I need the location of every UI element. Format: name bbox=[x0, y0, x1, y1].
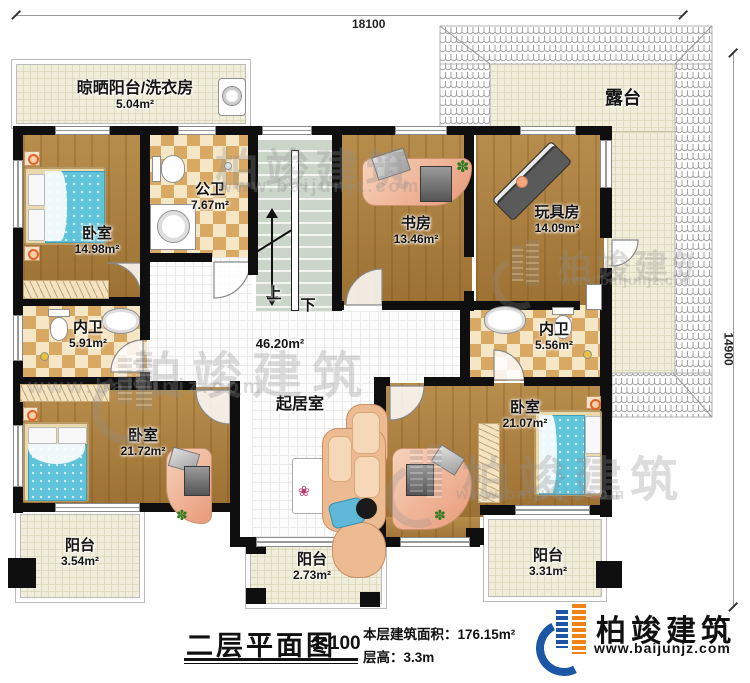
wall bbox=[140, 306, 150, 340]
window bbox=[262, 126, 312, 135]
window bbox=[515, 505, 590, 515]
window bbox=[13, 160, 23, 228]
plan-scale: 1:100 bbox=[312, 633, 361, 655]
wall bbox=[480, 505, 515, 515]
pillar bbox=[246, 588, 266, 604]
room-label-toy-room: 玩具房 14.09m² bbox=[515, 205, 599, 235]
corridor-right-floor bbox=[380, 311, 468, 381]
wall bbox=[332, 126, 342, 311]
room-label-balcony-front: 阳台 2.73m² bbox=[272, 552, 352, 582]
nightstand bbox=[24, 151, 40, 166]
laundry-area: 5.04m² bbox=[45, 98, 225, 111]
sofa-cushion bbox=[328, 436, 352, 482]
pillar bbox=[596, 561, 622, 588]
wall bbox=[460, 305, 470, 386]
terrace-name: 露台 bbox=[585, 88, 661, 108]
wall bbox=[464, 133, 474, 257]
bedroom-bl-name: 卧室 bbox=[98, 428, 188, 445]
toy-room-area: 14.09m² bbox=[515, 222, 599, 235]
bed bbox=[23, 422, 89, 502]
room-label-balcony-left: 阳台 3.54m² bbox=[40, 538, 120, 568]
wall bbox=[382, 301, 472, 310]
dimension-right-value: 14900 bbox=[722, 332, 736, 365]
balcony-right-area: 3.31m² bbox=[508, 565, 588, 578]
wardrobe bbox=[20, 384, 110, 402]
plan-title-underline2 bbox=[184, 663, 358, 664]
stairs-up-text: 上 bbox=[262, 286, 286, 303]
sofa-cushion bbox=[352, 412, 380, 454]
plant-icon: ✽ bbox=[456, 160, 469, 176]
balcony-front-area: 2.73m² bbox=[272, 569, 352, 582]
floor-area-line: 本层建筑面积：176.15m² bbox=[363, 623, 515, 643]
nightstand bbox=[23, 407, 38, 421]
public-bath-area: 7.67m² bbox=[178, 199, 242, 212]
inner-bath-right-name: 内卫 bbox=[520, 322, 588, 339]
plant-icon: ✽ bbox=[176, 508, 188, 522]
room-label-inner-bath-left: 内卫 5.91m² bbox=[56, 320, 120, 350]
stair-arrow-up bbox=[266, 208, 278, 218]
room-label-study: 书房 13.46m² bbox=[384, 216, 448, 246]
wall bbox=[140, 133, 150, 305]
dimension-top-value: 18100 bbox=[352, 17, 385, 31]
window bbox=[13, 425, 23, 487]
living-name: 起居室 bbox=[258, 396, 342, 414]
wall bbox=[336, 301, 344, 310]
person-head bbox=[356, 498, 377, 519]
stairs-down-text: 下 bbox=[296, 298, 320, 315]
toilet-icon bbox=[48, 309, 70, 317]
bedroom-tl-name: 卧室 bbox=[55, 226, 139, 243]
plant-icon: ✽ bbox=[434, 508, 446, 522]
wall bbox=[248, 133, 258, 275]
balcony-left-area: 3.54m² bbox=[40, 555, 120, 568]
balcony-right-name: 阳台 bbox=[508, 548, 588, 565]
terrace-floor-right bbox=[608, 132, 675, 375]
bedroom-bl-area: 21.72m² bbox=[98, 445, 188, 458]
bedroom-br-area: 21.07m² bbox=[480, 417, 570, 430]
brand-logo-icon bbox=[536, 604, 592, 664]
pillar bbox=[360, 592, 380, 607]
room-label-bedroom-bl: 卧室 21.72m² bbox=[98, 428, 188, 458]
dimension-line-top bbox=[15, 15, 683, 16]
nightstand bbox=[586, 396, 601, 409]
room-label-bedroom-br: 卧室 21.07m² bbox=[480, 400, 570, 430]
inner-bath-left-name: 内卫 bbox=[56, 320, 120, 337]
window bbox=[55, 126, 110, 135]
window bbox=[395, 126, 447, 135]
balcony-left-name: 阳台 bbox=[40, 538, 120, 555]
toy-room-name: 玩具房 bbox=[515, 205, 599, 222]
window bbox=[13, 315, 23, 361]
nightstand bbox=[24, 246, 40, 261]
room-label-bedroom-tl: 卧室 14.98m² bbox=[55, 226, 139, 256]
inner-bath-left-area: 5.91m² bbox=[56, 337, 120, 350]
sofa-cushion bbox=[354, 456, 380, 498]
corridor-left-floor bbox=[148, 257, 252, 387]
wall bbox=[230, 381, 240, 547]
stair-rail bbox=[291, 150, 299, 311]
ball-icon bbox=[516, 176, 528, 188]
hall-area-value: 46.20m² bbox=[238, 337, 322, 352]
wardrobe bbox=[478, 423, 500, 503]
floor-height-line: 层高：3.3m bbox=[363, 646, 434, 666]
pillar bbox=[8, 558, 36, 588]
room-label-laundry: 晾晒阳台/洗衣房 5.04m² bbox=[45, 80, 225, 111]
toilet-icon bbox=[152, 156, 161, 182]
window bbox=[178, 126, 216, 135]
window bbox=[55, 503, 140, 512]
room-label-public-bath: 公卫 7.67m² bbox=[178, 182, 242, 212]
bedroom-tl-area: 14.98m² bbox=[55, 243, 139, 256]
lamp-icon bbox=[40, 352, 49, 361]
monitor-icon bbox=[184, 466, 210, 496]
wall bbox=[148, 253, 212, 262]
toilet-icon bbox=[161, 155, 185, 183]
door-stop bbox=[224, 162, 232, 170]
stairs-up-label: 上 bbox=[262, 286, 286, 303]
toilet-icon bbox=[552, 307, 574, 315]
bedroom-br-name: 卧室 bbox=[480, 400, 570, 417]
balcony-front-name: 阳台 bbox=[272, 552, 352, 569]
plan-title-underline bbox=[184, 658, 358, 661]
inner-bath-right-area: 5.56m² bbox=[520, 339, 588, 352]
window bbox=[400, 537, 470, 547]
laundry-name: 晾晒阳台/洗衣房 bbox=[45, 80, 225, 98]
monitor-icon bbox=[420, 166, 452, 202]
hall-area-label: 46.20m² bbox=[238, 337, 322, 352]
wall bbox=[13, 503, 55, 512]
sink-icon bbox=[157, 210, 190, 243]
dimension-line-right bbox=[733, 52, 734, 608]
wall bbox=[590, 505, 612, 515]
wall bbox=[524, 377, 612, 386]
stairs-down-label: 下 bbox=[296, 298, 320, 315]
monitor-icon bbox=[406, 464, 434, 496]
public-bath-name: 公卫 bbox=[178, 182, 242, 199]
wall bbox=[424, 377, 494, 386]
window bbox=[520, 126, 576, 135]
study-area: 13.46m² bbox=[384, 233, 448, 246]
flower-icon: ❀ bbox=[298, 484, 310, 498]
washing-machine-door bbox=[222, 86, 242, 106]
room-label-living: 起居室 bbox=[258, 396, 342, 414]
room-label-inner-bath-right: 内卫 5.56m² bbox=[520, 322, 588, 352]
room-label-balcony-right: 阳台 3.31m² bbox=[508, 548, 588, 578]
brand-site: www.baijunjz.com bbox=[594, 640, 731, 656]
wardrobe bbox=[23, 280, 109, 299]
room-label-terrace: 露台 bbox=[585, 88, 661, 108]
window bbox=[600, 140, 612, 188]
wall bbox=[386, 377, 390, 386]
study-name: 书房 bbox=[384, 216, 448, 233]
toy-room-door-leaf bbox=[586, 284, 602, 310]
